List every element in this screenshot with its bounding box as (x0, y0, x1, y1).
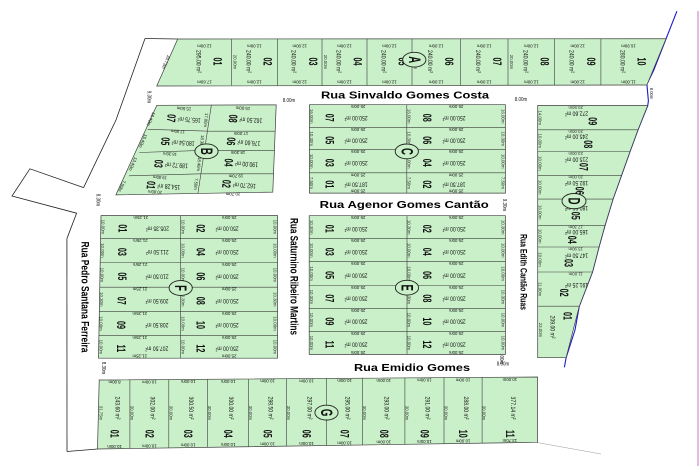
svg-text:04: 04 (221, 158, 235, 167)
svg-text:06: 06 (223, 137, 237, 146)
svg-text:205.35 m²: 205.35 m² (146, 224, 169, 231)
svg-text:17.00m: 17.00m (233, 131, 248, 136)
svg-text:09: 09 (322, 317, 335, 325)
svg-text:10.00m: 10.00m (500, 154, 505, 169)
svg-text:10.00m: 10.00m (337, 440, 352, 445)
svg-text:08: 08 (225, 114, 239, 123)
svg-text:12.00m: 12.00m (197, 44, 212, 49)
svg-text:03: 03 (322, 159, 335, 167)
svg-text:250.00 m²: 250.00 m² (216, 224, 239, 231)
svg-text:02: 02 (193, 224, 206, 232)
svg-text:04: 04 (221, 430, 234, 438)
svg-text:23.00m: 23.00m (568, 151, 583, 156)
svg-text:03: 03 (322, 248, 335, 256)
svg-text:10.00m: 10.00m (98, 340, 103, 355)
svg-text:10: 10 (634, 58, 647, 66)
svg-text:10.30m: 10.30m (407, 220, 412, 235)
svg-text:06: 06 (442, 58, 455, 66)
svg-text:10.00m: 10.00m (260, 379, 275, 384)
svg-text:10.00m: 10.00m (142, 379, 157, 384)
svg-text:10.30m: 10.30m (273, 292, 278, 307)
svg-text:01: 01 (115, 224, 128, 232)
svg-text:210.50 m²: 210.50 m² (146, 272, 169, 279)
svg-text:9.30m: 9.30m (501, 199, 507, 212)
svg-text:12.00m: 12.00m (247, 44, 262, 49)
svg-text:8.00m: 8.00m (108, 380, 120, 385)
svg-text:03: 03 (114, 248, 127, 256)
svg-text:16.00m: 16.00m (309, 109, 314, 124)
svg-text:10.30m: 10.30m (309, 131, 314, 146)
svg-text:10.00m: 10.00m (538, 252, 543, 267)
svg-text:11: 11 (113, 345, 126, 353)
svg-text:10.30m: 10.30m (309, 220, 314, 235)
svg-text:10.00m: 10.00m (180, 220, 185, 235)
svg-text:250.00 m²: 250.00 m² (216, 248, 239, 255)
svg-text:10.00m: 10.00m (502, 377, 517, 382)
svg-text:10: 10 (193, 321, 206, 329)
svg-text:209.00 m²: 209.00 m² (548, 316, 555, 339)
svg-text:12.00m: 12.00m (524, 44, 539, 49)
svg-text:25.00m: 25.00m (351, 104, 366, 109)
svg-text:18.30m: 18.30m (162, 151, 177, 157)
svg-text:25.00m: 25.00m (449, 238, 464, 243)
svg-text:10.00m: 10.00m (273, 268, 278, 283)
svg-text:11.00m: 11.00m (621, 79, 635, 84)
svg-text:10.00m: 10.00m (100, 220, 105, 235)
svg-text:10.00m: 10.00m (456, 438, 471, 443)
svg-text:12.00m: 12.00m (429, 44, 444, 49)
svg-text:25.00m: 25.00m (351, 149, 366, 154)
svg-text:10.00m: 10.00m (273, 340, 278, 355)
svg-text:21.25m: 21.25m (132, 354, 147, 359)
svg-text:8.00m: 8.00m (649, 88, 654, 100)
svg-text:25.00m: 25.00m (222, 262, 237, 267)
svg-text:25.00m: 25.00m (351, 285, 366, 290)
svg-text:10.00m: 10.00m (376, 378, 391, 383)
svg-text:30.00m: 30.00m (286, 406, 291, 421)
svg-text:10.00m: 10.00m (500, 243, 505, 258)
svg-text:04: 04 (193, 248, 206, 256)
svg-text:21.25m: 21.25m (132, 335, 147, 340)
svg-text:243.60 m²: 243.60 m² (113, 397, 120, 420)
svg-text:05: 05 (260, 430, 273, 438)
svg-text:08: 08 (193, 297, 206, 305)
svg-text:19.80m: 19.80m (152, 174, 167, 180)
svg-text:10.30m: 10.30m (500, 290, 505, 305)
svg-text:09: 09 (585, 117, 598, 125)
svg-text:F: F (172, 285, 190, 291)
svg-text:10.00m: 10.00m (273, 316, 278, 331)
svg-text:187.50 m²: 187.50 m² (443, 180, 466, 187)
svg-text:12.00m: 12.00m (570, 79, 585, 84)
svg-text:11: 11 (502, 430, 515, 438)
svg-text:30.00m: 30.00m (443, 406, 448, 421)
svg-text:10.00m: 10.00m (417, 378, 432, 383)
svg-text:08: 08 (376, 430, 389, 438)
svg-text:08: 08 (580, 140, 593, 148)
svg-text:08: 08 (420, 294, 433, 302)
svg-text:30.00m: 30.00m (207, 406, 212, 421)
svg-text:02: 02 (556, 289, 569, 297)
svg-text:13.70m: 13.70m (502, 438, 517, 443)
svg-text:12.00m: 12.00m (292, 44, 307, 49)
svg-text:16.00m: 16.00m (406, 109, 411, 124)
svg-text:01: 01 (322, 225, 335, 233)
svg-text:15.90m: 15.90m (568, 246, 583, 251)
svg-text:25.00m: 25.00m (449, 127, 464, 132)
svg-text:25.00m: 25.00m (449, 350, 464, 355)
svg-text:30.00m: 30.00m (362, 406, 367, 421)
svg-text:8.00m: 8.00m (283, 98, 296, 104)
svg-text:07: 07 (322, 114, 335, 122)
svg-text:250.00 m²: 250.00 m² (216, 344, 239, 351)
svg-text:02: 02 (420, 225, 433, 233)
svg-text:06: 06 (420, 271, 433, 279)
svg-text:10.00m: 10.00m (299, 441, 314, 446)
svg-text:187.50 m²: 187.50 m² (345, 180, 368, 187)
svg-text:10.00m: 10.00m (500, 336, 505, 351)
svg-text:05: 05 (114, 272, 127, 280)
svg-text:377.14 m²: 377.14 m² (509, 397, 516, 420)
svg-text:250.00 m²: 250.00 m² (345, 225, 368, 232)
svg-text:250.00 m²: 250.00 m² (345, 159, 368, 166)
svg-text:250.00 m²: 250.00 m² (216, 272, 239, 279)
svg-text:11: 11 (322, 341, 335, 349)
svg-text:25.00m: 25.00m (449, 261, 464, 266)
svg-text:250.00 m²: 250.00 m² (216, 321, 239, 328)
svg-text:250.00 m²: 250.00 m² (216, 297, 239, 304)
svg-text:250.00 m²: 250.00 m² (443, 136, 466, 143)
svg-text:17.00m: 17.00m (170, 128, 185, 134)
svg-text:03: 03 (561, 259, 574, 267)
svg-text:280.00 m²: 280.00 m² (618, 50, 625, 73)
svg-text:25.00m: 25.00m (351, 189, 366, 194)
svg-text:250.00 m²: 250.00 m² (443, 317, 466, 324)
svg-text:7.50m: 7.50m (193, 178, 199, 190)
svg-text:16.00m: 16.00m (538, 205, 543, 220)
svg-text:10.00m: 10.00m (500, 266, 505, 281)
svg-text:240.00 m²: 240.00 m² (244, 50, 251, 73)
svg-text:10.00m: 10.00m (538, 229, 543, 244)
svg-text:10.00m: 10.00m (417, 439, 432, 444)
svg-text:06: 06 (193, 272, 206, 280)
svg-text:10.00m: 10.00m (221, 442, 236, 447)
svg-text:250.00 m²: 250.00 m² (443, 271, 466, 278)
svg-text:04: 04 (420, 248, 433, 256)
svg-text:Rua Saturnino Ribeiro Martins: Rua Saturnino Ribeiro Martins (287, 218, 299, 335)
svg-text:10.00m: 10.00m (538, 133, 543, 148)
svg-text:10.00m: 10.00m (100, 243, 105, 258)
svg-text:10.00m: 10.00m (407, 266, 412, 281)
svg-text:10.00m: 10.00m (309, 243, 314, 258)
svg-text:04: 04 (564, 236, 577, 244)
svg-text:12.00m: 12.00m (477, 44, 492, 49)
svg-text:06: 06 (299, 430, 312, 438)
svg-text:09: 09 (583, 58, 596, 66)
svg-text:10.00m: 10.00m (500, 313, 505, 328)
svg-text:12.00m: 12.00m (247, 79, 262, 84)
svg-text:01: 01 (210, 58, 223, 66)
svg-text:10.30m: 10.30m (500, 220, 505, 235)
svg-text:14.00m: 14.00m (538, 110, 543, 125)
svg-text:208.50 m²: 208.50 m² (146, 321, 169, 328)
svg-text:240.00 m²: 240.00 m² (521, 50, 528, 73)
svg-text:25.00m: 25.00m (449, 172, 464, 177)
svg-text:250.00 m²: 250.00 m² (345, 248, 368, 255)
svg-text:23.00m: 23.00m (538, 323, 543, 338)
svg-text:191.25 m²: 191.25 m² (565, 281, 588, 288)
svg-text:250.00 m²: 250.00 m² (345, 294, 368, 301)
svg-text:A: A (405, 56, 423, 63)
svg-text:17.60m: 17.60m (197, 79, 212, 84)
svg-text:11.00m: 11.00m (568, 271, 582, 276)
svg-text:20.00m: 20.00m (568, 175, 583, 180)
svg-text:10.00m: 10.00m (309, 336, 314, 351)
svg-text:09: 09 (417, 430, 430, 438)
svg-text:10.00m: 10.00m (337, 378, 352, 383)
svg-text:12: 12 (193, 344, 206, 352)
svg-text:21.25m: 21.25m (133, 215, 148, 220)
svg-text:12.00m: 12.00m (524, 79, 539, 84)
svg-text:15.50m: 15.50m (176, 106, 191, 112)
svg-text:25.00m: 25.00m (222, 311, 237, 316)
svg-text:250.00 m²: 250.00 m² (345, 114, 368, 121)
svg-text:08: 08 (537, 58, 550, 66)
svg-text:250.00 m²: 250.00 m² (443, 225, 466, 232)
svg-text:10.00m: 10.00m (538, 156, 543, 171)
svg-text:10: 10 (420, 317, 433, 325)
svg-text:25.00m: 25.00m (449, 215, 464, 220)
svg-text:B: B (197, 148, 215, 155)
svg-text:25.00m: 25.00m (351, 172, 366, 177)
svg-text:10.00m: 10.00m (309, 266, 314, 281)
svg-text:16.00m: 16.00m (500, 109, 505, 124)
svg-text:17.30m: 17.30m (568, 225, 583, 230)
svg-text:8.00m: 8.00m (515, 97, 528, 103)
svg-text:10.00m: 10.00m (538, 180, 543, 195)
svg-text:211.50 m²: 211.50 m² (146, 248, 169, 255)
svg-text:20.50m: 20.50m (568, 105, 583, 110)
svg-text:25.00m: 25.00m (351, 261, 366, 266)
svg-text:05: 05 (157, 137, 171, 146)
svg-text:10.00m: 10.00m (376, 440, 391, 445)
svg-text:10.00m: 10.00m (107, 444, 122, 449)
svg-text:01: 01 (322, 180, 335, 188)
svg-text:05: 05 (322, 271, 335, 279)
svg-text:20.00m: 20.00m (232, 55, 237, 70)
svg-text:209.50 m²: 209.50 m² (146, 297, 169, 304)
svg-text:12.00m: 12.00m (382, 44, 397, 49)
svg-text:10.00m: 10.00m (309, 313, 314, 328)
svg-text:250.00 m²: 250.00 m² (345, 340, 368, 347)
svg-text:297.00 m²: 297.00 m² (305, 397, 312, 420)
svg-text:01: 01 (143, 180, 157, 189)
svg-text:19.70m: 19.70m (228, 173, 243, 178)
svg-text:10.00m: 10.00m (407, 243, 412, 258)
svg-text:12.00m: 12.00m (382, 79, 397, 84)
svg-text:207.50 m²: 207.50 m² (145, 344, 168, 351)
svg-text:7.50m: 7.50m (406, 177, 411, 189)
svg-text:02: 02 (260, 58, 273, 66)
svg-text:12.00m: 12.00m (570, 44, 585, 49)
svg-text:240.00 m²: 240.00 m² (426, 50, 433, 73)
svg-text:240.00 m²: 240.00 m² (289, 50, 296, 73)
svg-text:07: 07 (337, 430, 350, 438)
svg-text:25.00m: 25.00m (222, 335, 237, 340)
svg-text:240.00 m²: 240.00 m² (334, 50, 341, 73)
svg-text:12: 12 (420, 340, 433, 348)
svg-text:7.50m: 7.50m (500, 177, 505, 189)
svg-text:10.30m: 10.30m (99, 292, 104, 307)
svg-text:250.00 m²: 250.00 m² (443, 248, 466, 255)
svg-text:30.00m: 30.00m (482, 406, 487, 421)
svg-text:10.00m: 10.00m (99, 316, 104, 331)
svg-text:10.00m: 10.00m (99, 268, 104, 283)
svg-text:20.70m: 20.70m (225, 191, 240, 196)
svg-text:10.00m: 10.00m (181, 379, 196, 384)
svg-text:05: 05 (568, 212, 581, 220)
svg-text:07: 07 (490, 58, 503, 66)
svg-text:C: C (398, 148, 416, 155)
svg-text:G: G (317, 409, 335, 416)
svg-text:Rua Agenor Gomes Cantão: Rua Agenor Gomes Cantão (320, 200, 489, 211)
svg-text:10.30m: 10.30m (309, 290, 314, 305)
svg-text:20.00m: 20.00m (509, 55, 514, 70)
svg-text:10.00m: 10.00m (407, 336, 412, 351)
svg-text:10.30m: 10.30m (500, 131, 505, 146)
svg-text:Rua Sinvaldo Gomes Costa: Rua Sinvaldo Gomes Costa (321, 90, 489, 101)
svg-text:11.00m: 11.00m (538, 282, 543, 296)
svg-text:25.00m: 25.00m (222, 287, 237, 292)
svg-text:25.00m: 25.00m (449, 331, 464, 336)
svg-text:21.25m: 21.25m (133, 262, 148, 267)
svg-text:02: 02 (419, 180, 432, 188)
svg-text:25.00m: 25.00m (449, 308, 464, 313)
svg-text:10.00m: 10.00m (181, 443, 196, 448)
svg-text:10: 10 (455, 430, 468, 438)
svg-text:03: 03 (305, 58, 318, 66)
svg-text:08: 08 (419, 114, 432, 122)
svg-text:250.00 m²: 250.00 m² (345, 317, 368, 324)
svg-text:25.00m: 25.00m (449, 104, 464, 109)
svg-text:250.00 m²: 250.00 m² (443, 114, 466, 121)
svg-text:25.00m: 25.00m (351, 308, 366, 313)
svg-text:10.00m: 10.00m (273, 243, 278, 258)
svg-text:300.00 m²: 300.00 m² (227, 397, 234, 420)
svg-text:30.00m: 30.00m (404, 406, 409, 421)
svg-text:25.00m: 25.00m (351, 350, 366, 355)
svg-text:8.30m: 8.30m (94, 194, 100, 207)
svg-text:10.00m: 10.00m (260, 441, 275, 446)
svg-text:10.00m: 10.00m (142, 443, 157, 448)
svg-text:21.25m: 21.25m (133, 238, 148, 243)
svg-text:250.00 m²: 250.00 m² (443, 159, 466, 166)
svg-text:10.00m: 10.00m (180, 340, 185, 355)
svg-text:240.00 m²: 240.00 m² (567, 50, 574, 73)
svg-text:10.00m: 10.00m (273, 220, 278, 235)
svg-text:8.30m: 8.30m (100, 362, 106, 375)
svg-text:12.00m: 12.00m (429, 79, 444, 84)
svg-text:30.00m: 30.00m (129, 406, 134, 421)
svg-text:25.00m: 25.00m (351, 238, 366, 243)
svg-text:250.00 m²: 250.00 m² (345, 271, 368, 278)
svg-text:20.00m: 20.00m (568, 129, 583, 134)
svg-text:25.00m: 25.00m (222, 354, 237, 359)
svg-text:D: D (565, 198, 583, 205)
svg-text:10.00m: 10.00m (407, 313, 412, 328)
svg-text:12.00m: 12.00m (477, 79, 492, 84)
svg-text:25.00m: 25.00m (351, 331, 366, 336)
svg-text:25.00m: 25.00m (351, 215, 366, 220)
svg-text:25.00m: 25.00m (449, 149, 464, 154)
svg-text:10.00m: 10.00m (456, 377, 471, 382)
svg-text:10.00m: 10.00m (299, 378, 314, 383)
svg-text:25.00m: 25.00m (449, 285, 464, 290)
svg-text:21.25m: 21.25m (132, 287, 147, 292)
svg-text:20.80m: 20.80m (147, 189, 162, 195)
svg-text:10.00m: 10.00m (180, 243, 185, 258)
svg-text:25.00m: 25.00m (222, 238, 237, 243)
svg-text:06: 06 (419, 136, 432, 144)
svg-text:E: E (398, 285, 416, 291)
svg-text:Rua Edith Cantão Ruas: Rua Edith Cantão Ruas (517, 234, 528, 310)
svg-text:10.00m: 10.00m (221, 379, 236, 384)
svg-text:30.00m: 30.00m (168, 406, 173, 421)
svg-text:31.75m: 31.75m (99, 406, 104, 421)
svg-text:250.00 m²: 250.00 m² (443, 294, 466, 301)
svg-text:288.00 m²: 288.00 m² (462, 397, 469, 420)
svg-text:04: 04 (350, 58, 363, 66)
svg-text:01: 01 (560, 312, 573, 320)
svg-text:21.25m: 21.25m (132, 311, 147, 316)
svg-text:12.00m: 12.00m (292, 79, 307, 84)
svg-text:10.00m: 10.00m (309, 154, 314, 169)
svg-text:12.00m: 12.00m (337, 79, 352, 84)
svg-text:03: 03 (181, 430, 194, 438)
svg-text:25.00m: 25.00m (222, 215, 237, 220)
svg-text:07: 07 (322, 294, 335, 302)
svg-text:05: 05 (322, 136, 335, 144)
svg-text:250.00 m²: 250.00 m² (443, 340, 466, 347)
svg-text:9.30m: 9.30m (145, 91, 151, 104)
svg-text:295.00 m²: 295.00 m² (194, 50, 201, 73)
svg-text:240.00 m²: 240.00 m² (379, 50, 386, 73)
svg-text:15.00m: 15.00m (235, 105, 250, 111)
svg-text:20.00m: 20.00m (323, 55, 328, 70)
svg-text:10.00m: 10.00m (180, 316, 185, 331)
svg-text:12.00m: 12.00m (337, 44, 352, 49)
svg-text:298.50 m²: 298.50 m² (266, 397, 273, 420)
svg-text:302.00 m²: 302.00 m² (148, 397, 155, 420)
svg-text:04: 04 (419, 159, 432, 167)
svg-text:07: 07 (114, 297, 127, 305)
svg-text:25.00m: 25.00m (351, 127, 366, 132)
svg-text:250.00 m²: 250.00 m² (345, 136, 368, 143)
svg-text:300.50 m²: 300.50 m² (187, 397, 194, 420)
svg-text:293.00 m²: 293.00 m² (382, 397, 389, 420)
svg-text:30.00m: 30.00m (248, 406, 253, 421)
svg-text:240.00 m²: 240.00 m² (474, 50, 481, 73)
svg-text:07: 07 (163, 114, 177, 123)
svg-text:16.90m: 16.90m (621, 44, 636, 49)
svg-text:295.00 m²: 295.00 m² (343, 397, 350, 420)
svg-text:Rua Emidio Gomes: Rua Emidio Gomes (354, 363, 470, 374)
svg-text:25.00m: 25.00m (449, 189, 464, 194)
svg-text:03: 03 (150, 159, 164, 168)
svg-text:07: 07 (576, 163, 589, 171)
svg-text:02: 02 (142, 430, 155, 438)
svg-text:Rua Pedro Santana Ferreira: Rua Pedro Santana Ferreira (79, 242, 91, 354)
